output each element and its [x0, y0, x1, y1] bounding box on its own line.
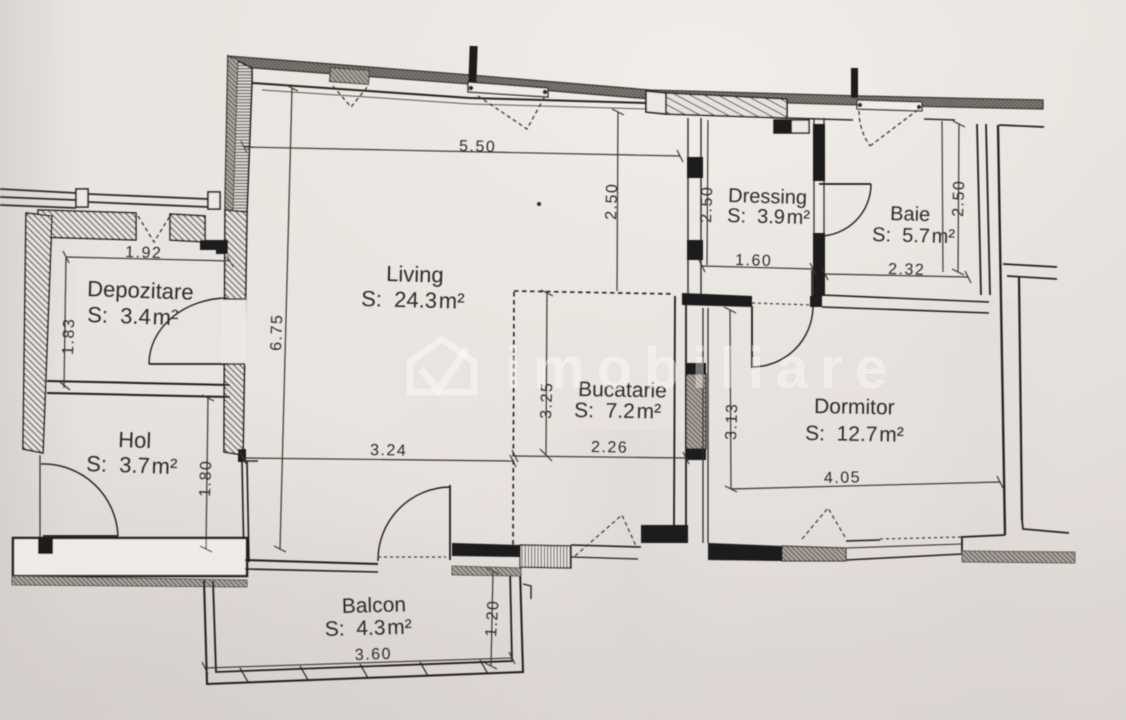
svg-text:Baie: Baie: [890, 203, 931, 226]
svg-text:1.92: 1.92: [125, 244, 163, 262]
svg-text:3.24: 3.24: [370, 442, 407, 460]
svg-text:1.83: 1.83: [60, 317, 78, 355]
svg-text:6.75: 6.75: [268, 313, 286, 351]
svg-text:4.05: 4.05: [824, 469, 861, 487]
svg-text:1.80: 1.80: [197, 459, 215, 497]
svg-text:S: 3.9 m²: S: 3.9 m²: [727, 205, 811, 229]
svg-text:3.60: 3.60: [355, 646, 393, 664]
svg-text:S: 12.7 m²: S: 12.7 m²: [805, 422, 904, 447]
svg-text:1.60: 1.60: [735, 252, 773, 270]
svg-text:1.20: 1.20: [483, 599, 503, 637]
svg-text:Hol: Hol: [118, 427, 152, 453]
svg-text:2.50: 2.50: [603, 182, 621, 220]
svg-text:S: 4.3 m²: S: 4.3 m²: [325, 616, 413, 641]
svg-text:2.32: 2.32: [888, 261, 926, 279]
svg-text:5.50: 5.50: [459, 138, 497, 156]
svg-text:S: 7.2 m²: S: 7.2 m²: [574, 399, 661, 424]
svg-text:Depozitare: Depozitare: [87, 276, 194, 305]
svg-text:2.26: 2.26: [591, 439, 628, 457]
svg-text:S: 3.7 m²: S: 3.7 m²: [86, 451, 178, 479]
svg-text:2.50: 2.50: [950, 179, 968, 217]
svg-text:S: 5.7 m²: S: 5.7 m²: [872, 224, 956, 248]
svg-text:imobiliare: imobiliare: [505, 336, 899, 401]
svg-text:S: 3.4 m²: S: 3.4 m²: [87, 302, 179, 330]
svg-text:Balcon: Balcon: [342, 593, 407, 618]
svg-text:3.13: 3.13: [723, 402, 741, 440]
svg-text:Living: Living: [386, 261, 444, 287]
svg-text:2.50: 2.50: [698, 185, 716, 223]
svg-text:S: 24.3 m²: S: 24.3 m²: [361, 286, 465, 314]
